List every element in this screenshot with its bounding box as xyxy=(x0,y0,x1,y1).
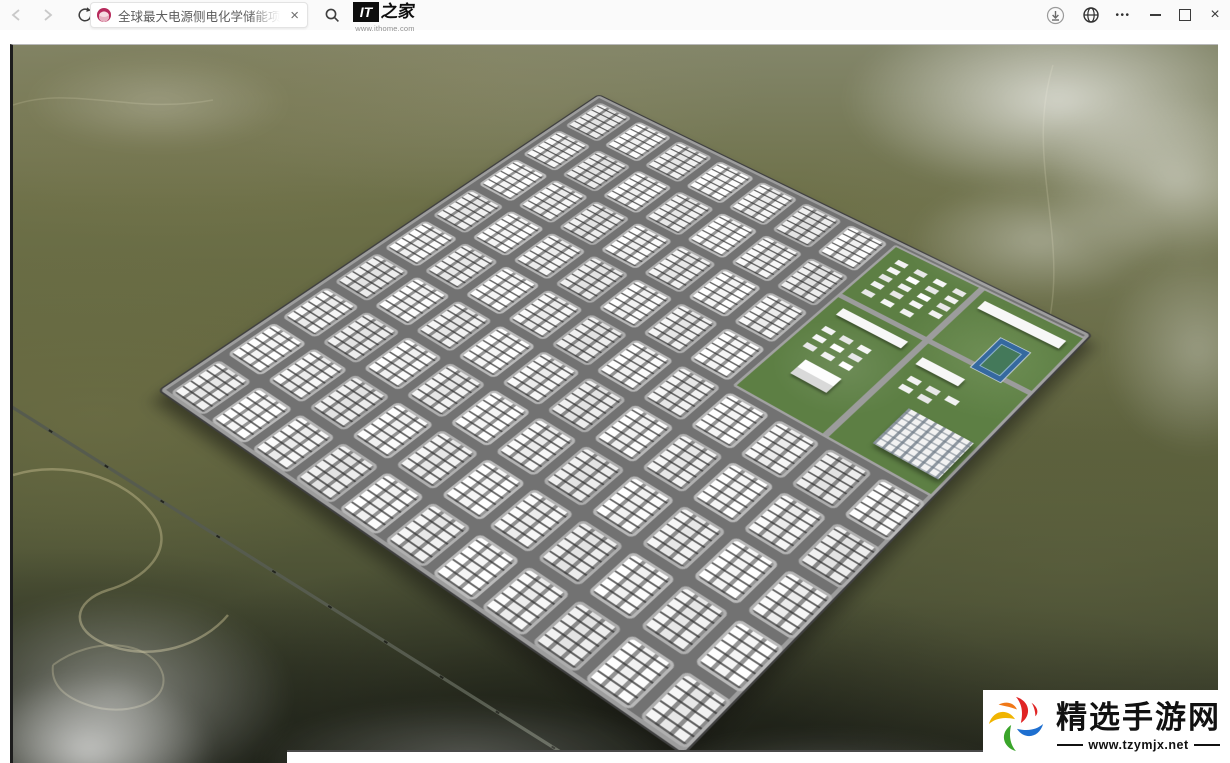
watermark-pinwheel-icon xyxy=(985,692,1047,761)
sports-court-surface xyxy=(979,344,1022,376)
office-building xyxy=(873,408,974,479)
browser-window: { "browser": { "nav": { "back_icon": "ch… xyxy=(0,0,1230,763)
cloud xyxy=(23,55,293,150)
browser-toolbar: 全球最大电源侧电化学储能项 × ••• × xyxy=(0,0,1230,30)
minimize-icon[interactable] xyxy=(1140,1,1170,29)
watermark-dash xyxy=(1194,744,1220,746)
close-window-icon[interactable]: × xyxy=(1200,1,1230,29)
back-icon[interactable] xyxy=(4,2,30,28)
window-controls: ••• × xyxy=(1040,0,1230,30)
transformer-bay xyxy=(906,376,922,386)
equipment-building xyxy=(915,357,965,386)
transformer-bay xyxy=(821,326,836,336)
tab-title: 全球最大电源侧电化学储能项 xyxy=(118,6,280,25)
transformer-bay xyxy=(894,260,908,269)
equipment-building xyxy=(790,359,841,392)
bottom-content-bar xyxy=(287,750,983,763)
maximize-icon[interactable] xyxy=(1170,1,1200,29)
search-icon[interactable] xyxy=(318,2,346,28)
sports-court xyxy=(970,337,1032,383)
watermark-dash xyxy=(1057,744,1083,746)
watermark-site-name: 精选手游网 xyxy=(1056,701,1221,735)
download-icon[interactable] xyxy=(1040,1,1070,29)
forward-icon[interactable] xyxy=(34,2,60,28)
watermark-site-url: www.tzymjx.net xyxy=(1088,738,1188,752)
site-logo-script: 之家 xyxy=(380,2,416,22)
article-image xyxy=(10,44,1218,763)
globe-icon[interactable] xyxy=(1076,1,1106,29)
page-tab[interactable]: 全球最大电源侧电化学储能项 × xyxy=(90,2,308,28)
tab-close-icon[interactable]: × xyxy=(288,8,301,23)
tab-favicon-icon xyxy=(97,8,111,22)
site-logo-badge: IT xyxy=(353,2,379,22)
more-menu-icon[interactable]: ••• xyxy=(1106,1,1140,29)
cloud xyxy=(908,180,1168,300)
site-logo[interactable]: IT之家 www.ithome.com xyxy=(353,2,423,38)
watermark: 精选手游网 www.tzymjx.net xyxy=(983,690,1230,763)
site-logo-url: www.ithome.com xyxy=(353,24,417,33)
